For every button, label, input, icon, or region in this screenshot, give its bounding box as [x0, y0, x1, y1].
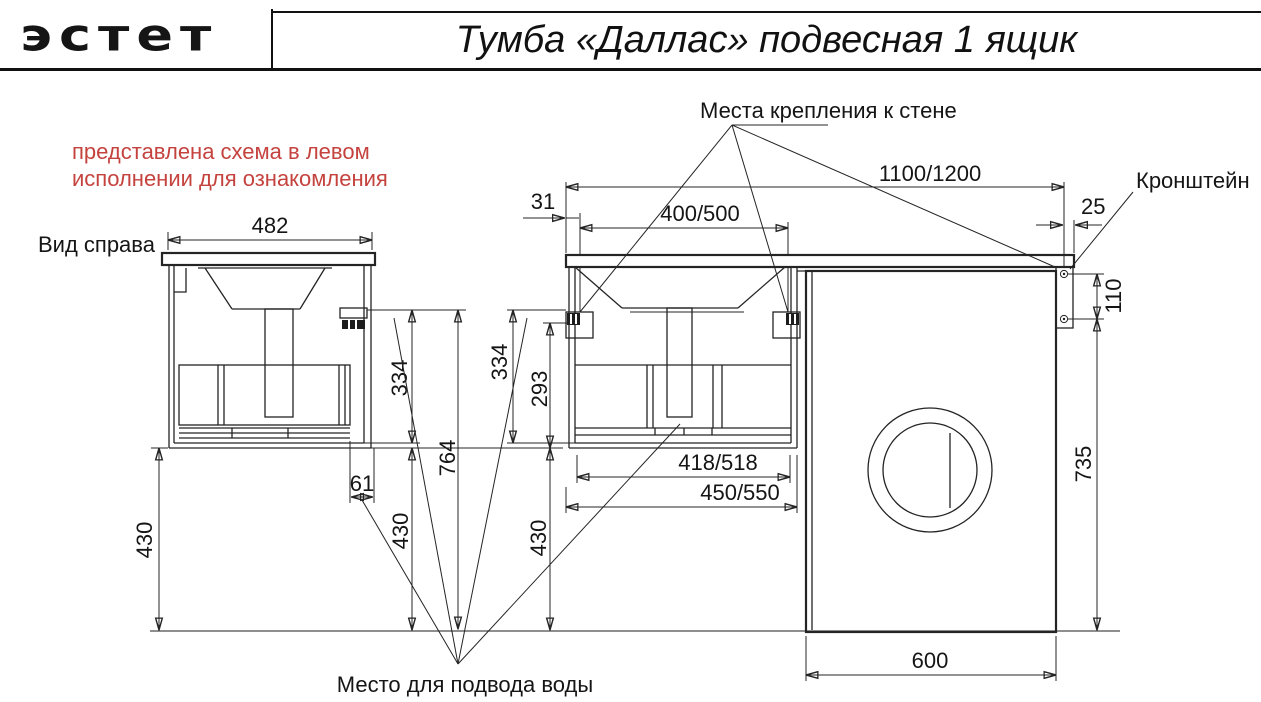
side-basin — [198, 268, 332, 309]
dim-side-mount-height: 334 — [387, 360, 412, 397]
dim-inner-height: 293 — [527, 371, 552, 408]
dim-clearance-left: 430 — [132, 522, 157, 559]
front-mount-right — [773, 267, 800, 338]
dim-side-depth: 482 — [252, 213, 289, 238]
dim-bracket-holes: 110 — [1101, 278, 1126, 313]
dim-bracket-edge: 25 — [1081, 194, 1105, 219]
side-hanger-bracket — [340, 308, 367, 329]
side-view: Вид справа — [38, 232, 375, 448]
side-drain-pipe — [265, 309, 293, 417]
side-view-label: Вид справа — [38, 232, 156, 257]
dim-machine-height: 735 — [1071, 446, 1096, 483]
side-notch — [174, 268, 186, 292]
technical-drawing: Вид справа — [0, 0, 1261, 702]
front-basin — [575, 267, 785, 312]
bracket-callout: Кронштейн 110 735 — [1056, 168, 1250, 630]
washing-machine: 600 — [806, 271, 1056, 681]
dim-clearance-side: 430 — [388, 513, 413, 550]
side-view-dimensions: 482 430 334 430 764 61 — [132, 213, 563, 630]
dim-mount-spacing: 400/500 — [660, 201, 740, 226]
dim-mount-floor-height: 764 — [435, 440, 460, 477]
dim-drain-offset: 61 — [350, 471, 374, 496]
wall-mounts-callout: Места крепления к стене — [580, 98, 1055, 312]
machine-door-inner — [883, 423, 977, 517]
front-mount-left — [566, 267, 593, 338]
dim-drawer-width: 418/518 — [678, 450, 758, 475]
front-drain-pipe — [667, 308, 692, 417]
side-countertop — [162, 253, 375, 265]
wall-mounts-label: Места крепления к стене — [700, 98, 957, 123]
dim-front-mount-height: 334 — [487, 344, 512, 381]
front-view — [566, 255, 1074, 448]
front-view-dimensions: 31 400/500 1100/1200 25 334 293 430 — [487, 161, 1105, 630]
dim-body-width: 450/550 — [700, 480, 780, 505]
dim-machine-width: 600 — [912, 648, 949, 673]
dim-clearance-front: 430 — [526, 520, 551, 557]
front-drawer — [575, 365, 791, 435]
front-countertop — [566, 255, 1074, 267]
machine-door-outer — [868, 408, 992, 532]
drawing-sheet: эстет Тумба «Даллас» подвесная 1 ящик пр… — [0, 0, 1261, 702]
bracket-label: Кронштейн — [1136, 168, 1250, 193]
water-supply-label: Место для подвода воды — [337, 672, 593, 697]
dim-overall-width: 1100/1200 — [879, 161, 981, 186]
dim-edge-offset: 31 — [531, 189, 555, 214]
